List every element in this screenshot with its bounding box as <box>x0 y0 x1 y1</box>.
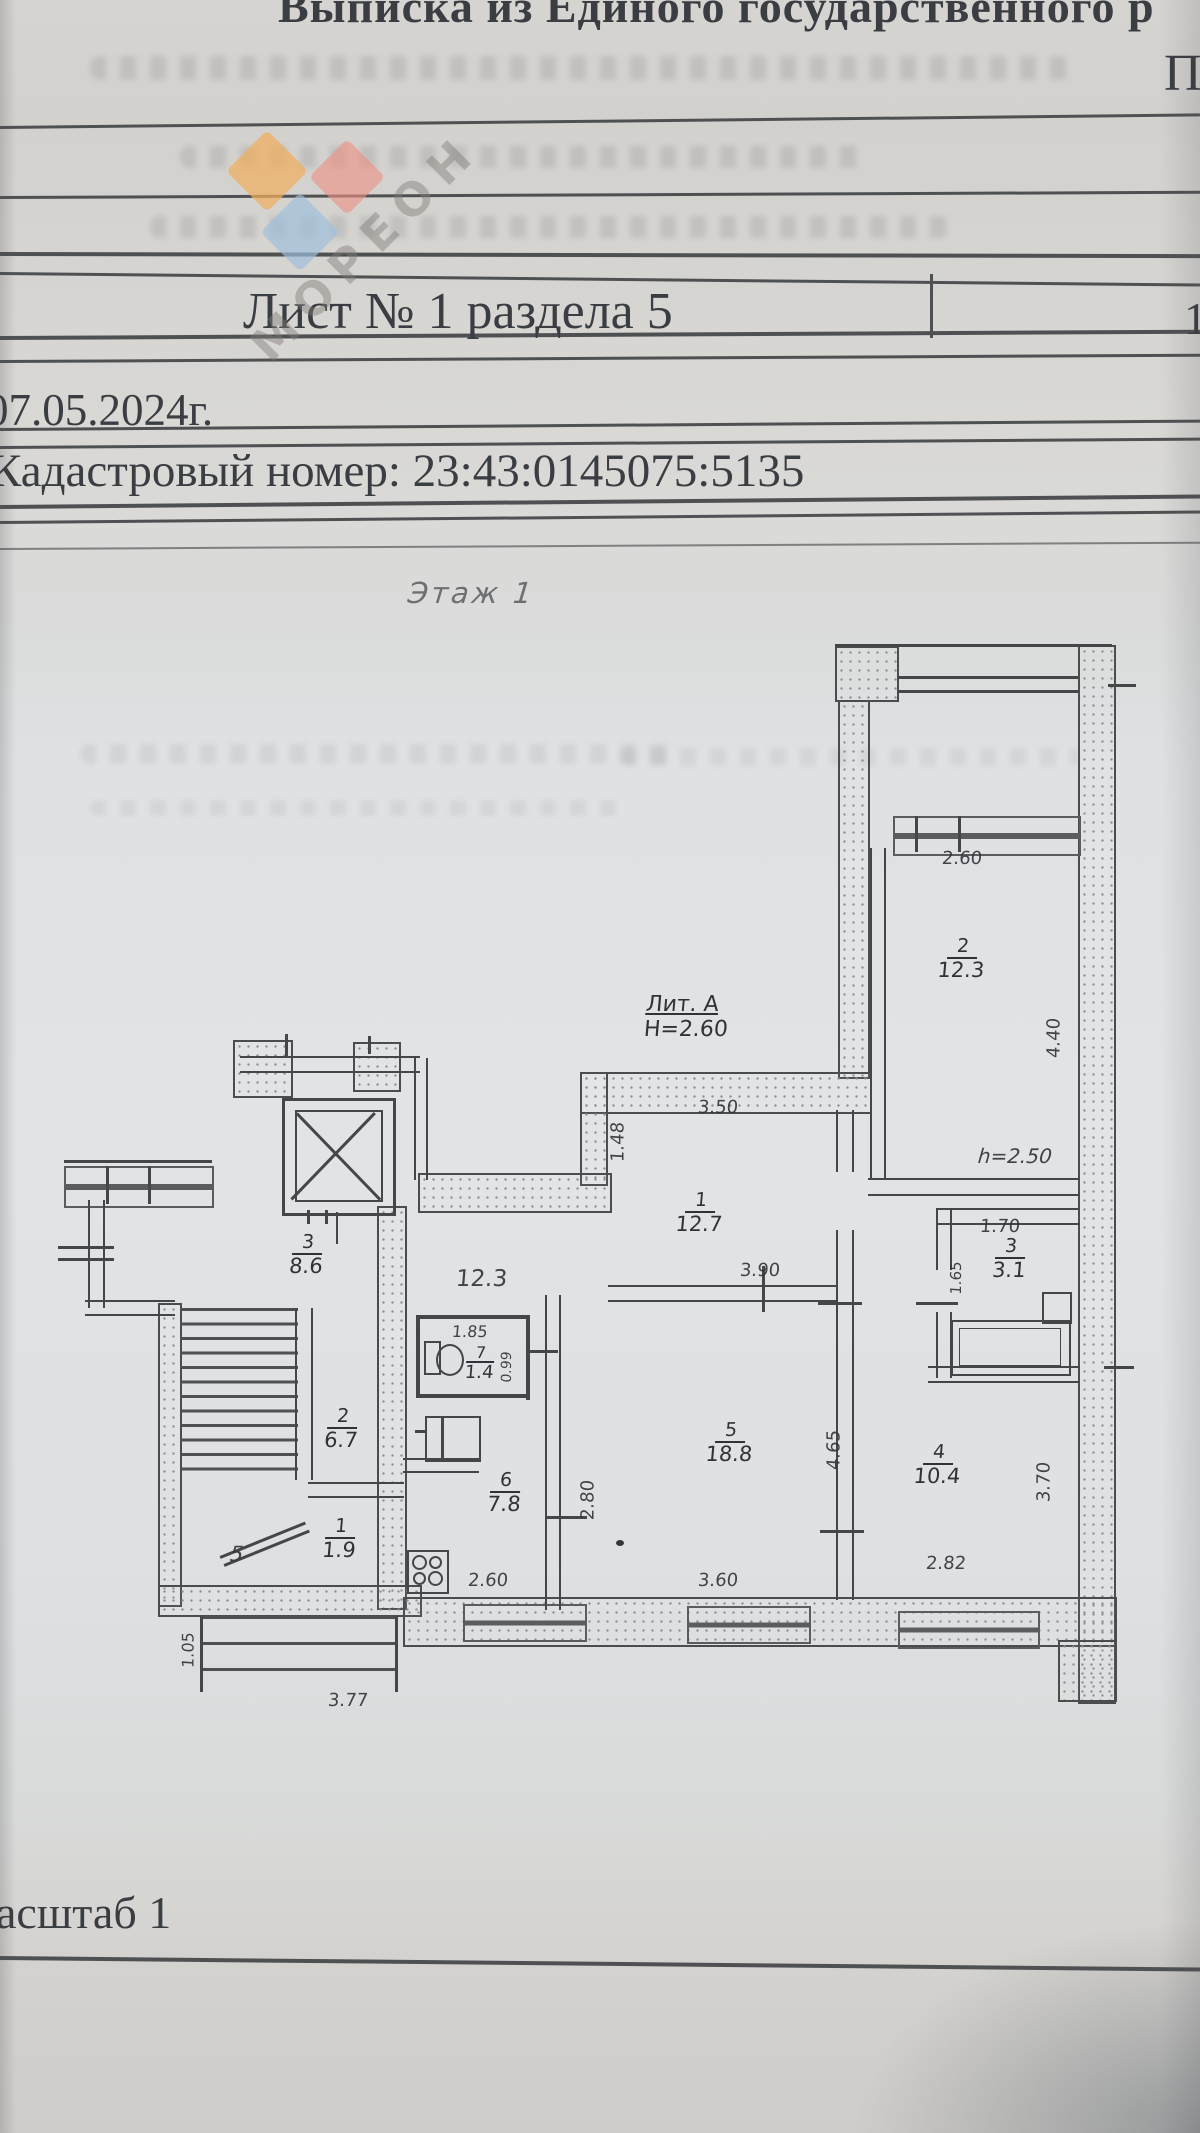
balcony-railing <box>897 690 1078 693</box>
wall-vestibule-left <box>88 1200 105 1308</box>
room-number: 3 <box>995 1236 1027 1259</box>
dim-label: 2.60 <box>941 848 983 869</box>
room-number: 1 <box>325 1516 357 1539</box>
bathtub-inner-icon <box>959 1328 1061 1366</box>
dim-label-vertical: 1.48 <box>608 1121 629 1163</box>
bottom-right-shadow <box>840 1913 1200 2133</box>
room-number: 3 <box>292 1232 324 1255</box>
window-divider <box>915 816 918 852</box>
stair-mark: 5 <box>229 1542 244 1566</box>
elevator-door-stub <box>307 1210 310 1224</box>
dim-label-vertical: 1.05 <box>179 1632 198 1669</box>
wall-wc <box>416 1394 530 1398</box>
entrance-steps <box>200 1616 398 1692</box>
room-area: 8.6 <box>267 1255 345 1278</box>
wall-room2-bottom <box>868 1178 1080 1196</box>
elevator-door-stub <box>325 1210 328 1224</box>
dim-tick <box>58 1246 114 1249</box>
window-room2-balcony <box>893 816 1081 856</box>
room-label-hall: 3 8.6 <box>267 1232 347 1277</box>
sheet-right-partial: 1 <box>1184 292 1200 345</box>
room-label-stair-lower: 1 1.9 <box>300 1516 380 1561</box>
room-area: 3.1 <box>970 1259 1048 1282</box>
wall-corridor-step <box>580 1072 608 1186</box>
dim-label: 1.70 <box>979 1216 1021 1237</box>
wall-bottom-left <box>158 1585 422 1617</box>
dim-label: 3.50 <box>697 1097 739 1118</box>
cadastral-number: Кадастровый номер: 23:43:0145075:5135 <box>0 444 804 498</box>
room-area: 12.7 <box>660 1213 738 1236</box>
door-tick <box>916 1302 958 1305</box>
wall-balcony-stub <box>835 646 899 702</box>
table-rule <box>0 113 1200 129</box>
window-kitchen <box>463 1604 587 1642</box>
dim-tick <box>820 1530 864 1533</box>
room-number: 4 <box>923 1442 955 1465</box>
floor-title: Этаж 1 <box>406 576 536 610</box>
cabinet-divider <box>441 1416 444 1458</box>
room-label-stair-upper: 2 6.7 <box>302 1406 382 1451</box>
staircase-stringer <box>295 1308 313 1480</box>
left-edge-shadow <box>0 0 16 2133</box>
wall-porch-right <box>414 1058 428 1180</box>
room-label-room4: 4 10.4 <box>898 1442 978 1487</box>
wall-stair-landing <box>308 1482 404 1498</box>
table-rule <box>0 354 1200 363</box>
balcony-railing <box>897 676 1078 679</box>
dim-label-vertical: 0.99 <box>499 1351 515 1383</box>
building-litera: Лит. А Н=2.60 <box>643 992 731 1042</box>
door-tick <box>818 1302 862 1305</box>
room-label-room2: 2 12.3 <box>922 936 1002 981</box>
room-number: 5 <box>715 1420 747 1443</box>
room-area: 6.7 <box>302 1429 380 1452</box>
ink-dot <box>616 1540 624 1546</box>
wall-exterior-right <box>1078 645 1116 1704</box>
dim-label: 2.60 <box>467 1570 509 1591</box>
wall-lobby <box>836 1110 854 1172</box>
dim-label-vertical: 1.65 <box>947 1261 965 1296</box>
room-label-room5: 5 18.8 <box>690 1420 770 1465</box>
window-room5 <box>687 1606 811 1644</box>
room-number: 7 <box>466 1344 496 1363</box>
room-number: 1 <box>685 1190 717 1213</box>
wall-tick <box>1104 1366 1134 1369</box>
window-divider <box>958 816 961 852</box>
dim-label: 3.60 <box>697 1570 739 1591</box>
dim-label: 2.82 <box>925 1553 967 1574</box>
table-rule <box>0 511 1200 524</box>
wall-wc <box>416 1315 530 1319</box>
ceiling-height-note: h=2.50 <box>977 1144 1053 1168</box>
boiler-icon <box>1042 1292 1072 1324</box>
date-text: 07.05.2024г. <box>0 384 213 436</box>
table-cell-divider <box>930 274 933 338</box>
cabinet-icon <box>425 1416 481 1462</box>
dim-label: 1.85 <box>451 1322 488 1341</box>
scale-label: асштаб 1 <box>0 1886 171 1939</box>
dim-label: 3.77 <box>327 1690 369 1711</box>
dim-label-vertical: 4.65 <box>824 1429 845 1471</box>
header-letter-partial: П <box>1164 44 1200 103</box>
dim-tick <box>528 1350 558 1353</box>
room-area: 7.8 <box>465 1493 543 1516</box>
room-number: 2 <box>327 1406 359 1429</box>
litera-label: Лит. А <box>645 992 720 1017</box>
room-number: 2 <box>947 936 979 959</box>
corridor-area-label: 12.3 <box>455 1266 508 1292</box>
wall-wc <box>526 1315 530 1400</box>
wall-wc <box>416 1315 420 1398</box>
wall-corner-block <box>1058 1640 1117 1702</box>
entrance-steps-edge <box>200 1616 203 1692</box>
entrance-steps-edge <box>395 1616 398 1692</box>
room-label-corridor1: 1 12.7 <box>660 1190 740 1235</box>
cabinet-tick <box>415 1430 427 1433</box>
stove-burner-icon <box>412 1555 427 1570</box>
document-title-partial: Выписка из Единого государственного р <box>278 0 1155 33</box>
room-area: 18.8 <box>690 1443 768 1466</box>
wall-room5-top <box>608 1285 838 1302</box>
bleed-text-band <box>90 800 630 816</box>
wall-kitchen-room5 <box>545 1295 561 1610</box>
wall-stair-left <box>158 1303 182 1607</box>
wall-room2-left-exterior <box>838 700 870 1079</box>
vestibule-top-line <box>64 1160 212 1163</box>
window-divider <box>148 1166 151 1204</box>
dim-label-vertical: 2.80 <box>578 1479 599 1521</box>
wall-lobby <box>836 1230 854 1600</box>
table-rule <box>0 252 1200 258</box>
dim-label-vertical: 3.70 <box>1034 1461 1055 1503</box>
table-rule <box>0 542 1200 550</box>
stove-burner-icon <box>428 1571 443 1586</box>
room-area: 1.9 <box>300 1539 378 1562</box>
stove-burner-icon <box>413 1572 426 1585</box>
document-photo: Выписка из Единого государственного р П … <box>0 0 1200 2133</box>
porch-column-tick <box>285 1034 288 1056</box>
wall-tick <box>1108 684 1136 687</box>
dim-tick <box>58 1258 114 1261</box>
table-rule <box>0 191 1200 199</box>
room-area: 12.3 <box>922 959 1000 982</box>
wall-porch-top <box>240 1056 420 1073</box>
window-vestibule <box>64 1166 214 1208</box>
bleed-text-band <box>90 56 1070 80</box>
room-number: 6 <box>490 1470 522 1493</box>
dim-label: 3.90 <box>739 1260 781 1281</box>
window-divider <box>106 1166 109 1204</box>
stove-burner-icon <box>429 1556 442 1569</box>
stove-icon <box>407 1550 449 1594</box>
wall-room2-left <box>870 848 886 1180</box>
building-height-label: Н=2.60 <box>643 1017 729 1042</box>
room-label-bathroom: 3 3.1 <box>970 1236 1050 1281</box>
dim-label-vertical: 4.40 <box>1044 1017 1065 1059</box>
porch-column-tick <box>368 1036 371 1054</box>
room-label-kitchen: 6 7.8 <box>465 1470 545 1515</box>
window-room4 <box>898 1611 1040 1649</box>
bleed-text-band <box>80 744 680 764</box>
staircase-steps <box>180 1308 298 1478</box>
balcony-top-line <box>835 644 1112 647</box>
room-area: 10.4 <box>898 1465 976 1488</box>
wall-hall-top <box>418 1173 612 1213</box>
